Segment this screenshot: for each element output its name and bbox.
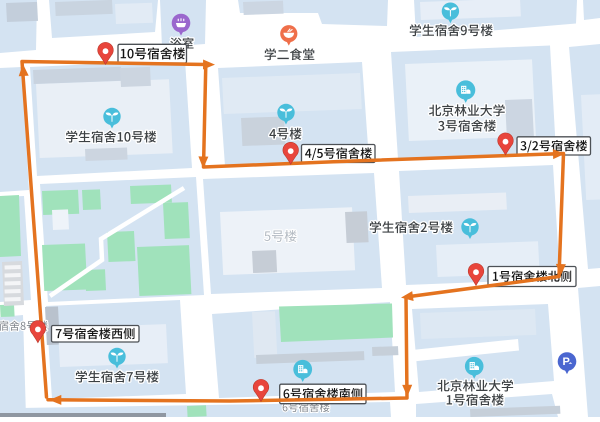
svg-text:P: P (563, 356, 570, 368)
